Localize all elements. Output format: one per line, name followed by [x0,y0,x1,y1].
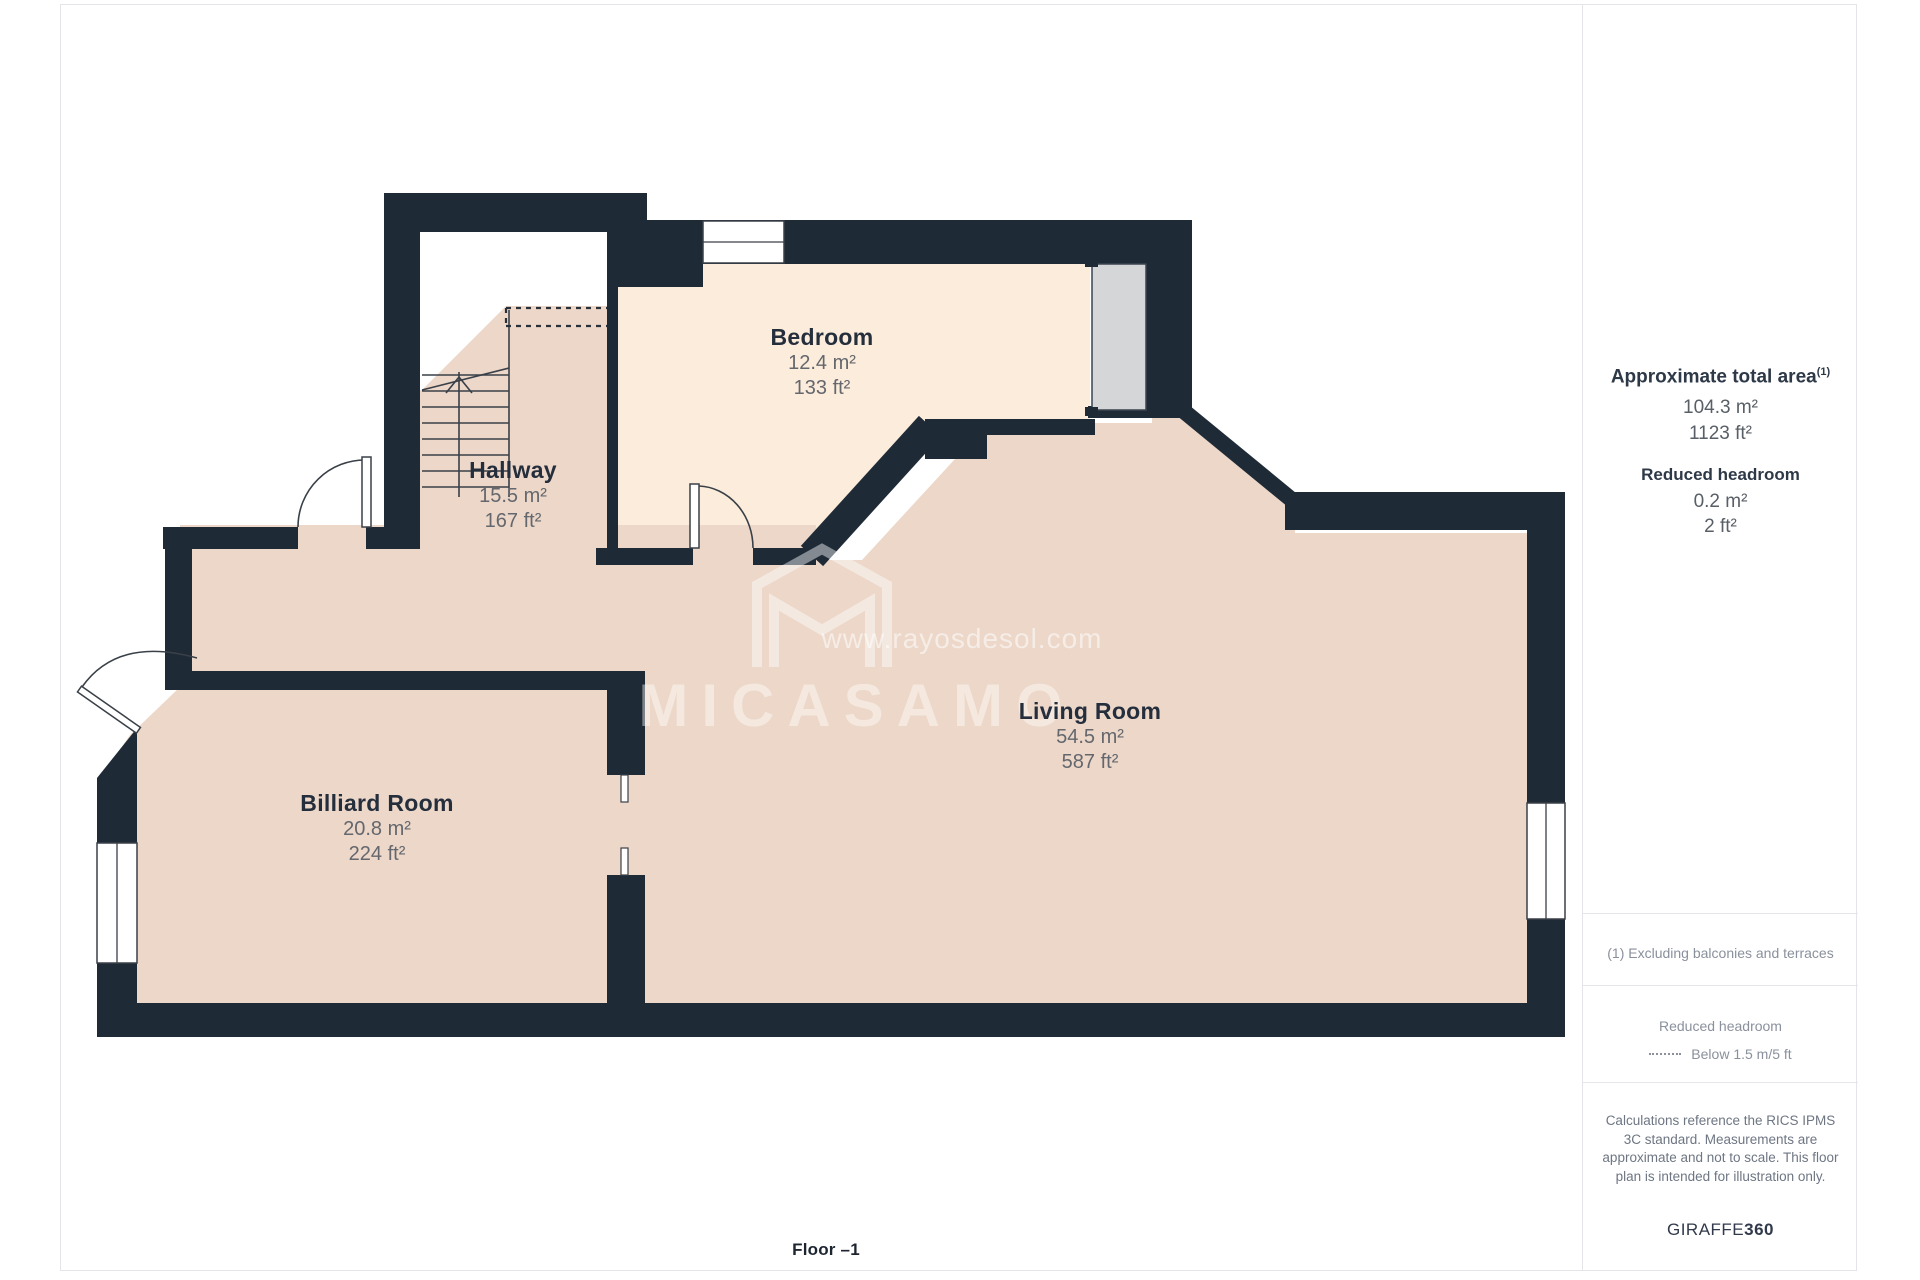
sidebar-divider [1583,913,1858,914]
reduced-headroom-m2: 0.2 m² [1583,491,1858,513]
room-area-m2: 54.5 m² [1019,725,1162,750]
brand-name: GIRAFFE [1667,1220,1744,1239]
total-area-label: Approximate total area(1) [1583,366,1858,388]
sidebar-divider [1583,985,1858,986]
room-area-ft2: 587 ft² [1019,750,1162,775]
room-name: Living Room [1019,697,1162,725]
room-label-living-room: Living Room 54.5 m² 587 ft² [1019,697,1162,775]
room-area-ft2: 167 ft² [469,509,557,534]
legend-title: Reduced headroom [1583,1018,1858,1034]
sidebar: Approximate total area(1) 104.3 m² 1123 … [1582,4,1857,1271]
disclaimer: Calculations reference the RICS IPMS 3C … [1601,1112,1840,1186]
room-label-bedroom: Bedroom 12.4 m² 133 ft² [770,323,873,401]
sidebar-divider [1583,1082,1858,1083]
left-window-icon [97,843,137,963]
watermark-url: www.rayosdesol.com [821,623,1103,654]
brand-logo: GIRAFFE360 [1583,1220,1858,1240]
bedroom-window-icon [703,221,784,263]
legend-label: Below 1.5 m/5 ft [1691,1046,1791,1062]
total-area-m2: 104.3 m² [1583,397,1858,419]
dotted-line-icon [1649,1053,1681,1055]
room-name: Hallway [469,456,557,484]
room-area-m2: 20.8 m² [300,817,453,842]
right-window-icon [1527,803,1565,919]
room-area-m2: 15.5 m² [469,484,557,509]
room-area-ft2: 133 ft² [770,376,873,401]
brand-suffix: 360 [1744,1220,1774,1239]
hallway-door-icon [298,457,371,527]
watermark-brand: MICASAMO [638,672,1075,739]
sliding-door-icon [1085,258,1146,416]
footnote-marker: (1) [1817,366,1830,378]
room-area-m2: 12.4 m² [770,351,873,376]
floor-label: Floor –1 [792,1240,860,1260]
room-name: Bedroom [770,323,873,351]
reduced-headroom-ft2: 2 ft² [1583,516,1858,538]
sidebar-footnote: (1) Excluding balconies and terraces [1583,945,1858,961]
room-label-hallway: Hallway 15.5 m² 167 ft² [469,456,557,534]
room-area-ft2: 224 ft² [300,842,453,867]
room-name: Billiard Room [300,789,453,817]
legend-row: Below 1.5 m/5 ft [1583,1046,1858,1062]
reduced-headroom-label: Reduced headroom [1583,465,1858,485]
room-label-billiard-room: Billiard Room 20.8 m² 224 ft² [300,789,453,867]
total-area-ft2: 1123 ft² [1583,423,1858,445]
